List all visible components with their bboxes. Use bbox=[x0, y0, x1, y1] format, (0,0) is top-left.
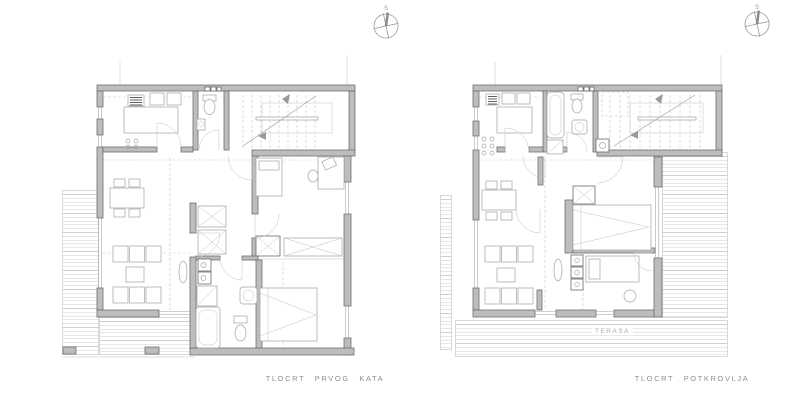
kitchen-sink bbox=[150, 93, 164, 105]
staircase bbox=[243, 94, 332, 148]
washer-icon bbox=[198, 259, 211, 271]
floor-lamp bbox=[554, 259, 562, 281]
attic-floor-plan bbox=[420, 45, 735, 365]
wc-sink bbox=[197, 119, 205, 130]
bedroom bbox=[256, 157, 344, 259]
stair-arrow-up bbox=[282, 94, 290, 104]
compass-icon: S bbox=[741, 0, 775, 42]
kitchen bbox=[482, 93, 532, 155]
bath-sink bbox=[240, 287, 257, 304]
coffee-table bbox=[497, 268, 515, 282]
stair-direction-line bbox=[243, 96, 316, 146]
kitchen-sink bbox=[502, 93, 515, 104]
kitchen bbox=[124, 93, 181, 149]
toilet-icon bbox=[234, 316, 247, 323]
bathroom bbox=[547, 87, 609, 154]
dining-table bbox=[482, 190, 516, 210]
compass-needle bbox=[756, 10, 760, 24]
kitchen-counter bbox=[497, 107, 532, 133]
dryer-icon bbox=[198, 272, 211, 284]
left-plan-caption: TLOCRT PRVOG KATA bbox=[240, 374, 410, 383]
compass-north-label: S bbox=[384, 6, 388, 12]
compass-icon: S bbox=[370, 1, 404, 43]
kids-bedroom bbox=[571, 255, 639, 302]
floor-lamp bbox=[179, 261, 187, 283]
washer-icon bbox=[596, 139, 609, 152]
balcony-posts bbox=[62, 347, 195, 357]
double-bed bbox=[573, 205, 651, 250]
bathroom bbox=[196, 286, 257, 348]
wc bbox=[197, 87, 221, 130]
shelf-unit bbox=[571, 279, 583, 290]
stair-landing bbox=[256, 117, 318, 120]
dining-set bbox=[482, 181, 516, 220]
stair-arrow bbox=[630, 131, 638, 139]
compass-needle bbox=[385, 12, 389, 26]
coffee-table bbox=[126, 267, 144, 282]
master-bedroom bbox=[573, 186, 651, 250]
stair-direction-line bbox=[614, 95, 695, 146]
kitchen-island bbox=[124, 107, 178, 133]
master-bed bbox=[260, 288, 317, 341]
stair-landing bbox=[638, 117, 696, 120]
pillow bbox=[259, 161, 279, 170]
dining-set bbox=[110, 179, 144, 217]
chair bbox=[624, 290, 636, 302]
right-plan-caption: TLOCRT POTKROVLJA bbox=[607, 374, 777, 383]
bathtub bbox=[547, 92, 564, 138]
staircase bbox=[610, 94, 703, 148]
sofa-set bbox=[113, 246, 187, 303]
hall-storage bbox=[198, 206, 226, 284]
stair-arrow-up bbox=[655, 94, 663, 104]
floor-plan-sheet: S S TERASA bbox=[0, 0, 800, 400]
pillow bbox=[589, 259, 600, 279]
bath-sink bbox=[572, 120, 587, 134]
first-floor-plan bbox=[55, 45, 370, 365]
chair bbox=[308, 170, 318, 182]
sofa-set bbox=[485, 246, 562, 304]
dining-table bbox=[110, 188, 144, 208]
compass-north-label: S bbox=[755, 5, 759, 11]
